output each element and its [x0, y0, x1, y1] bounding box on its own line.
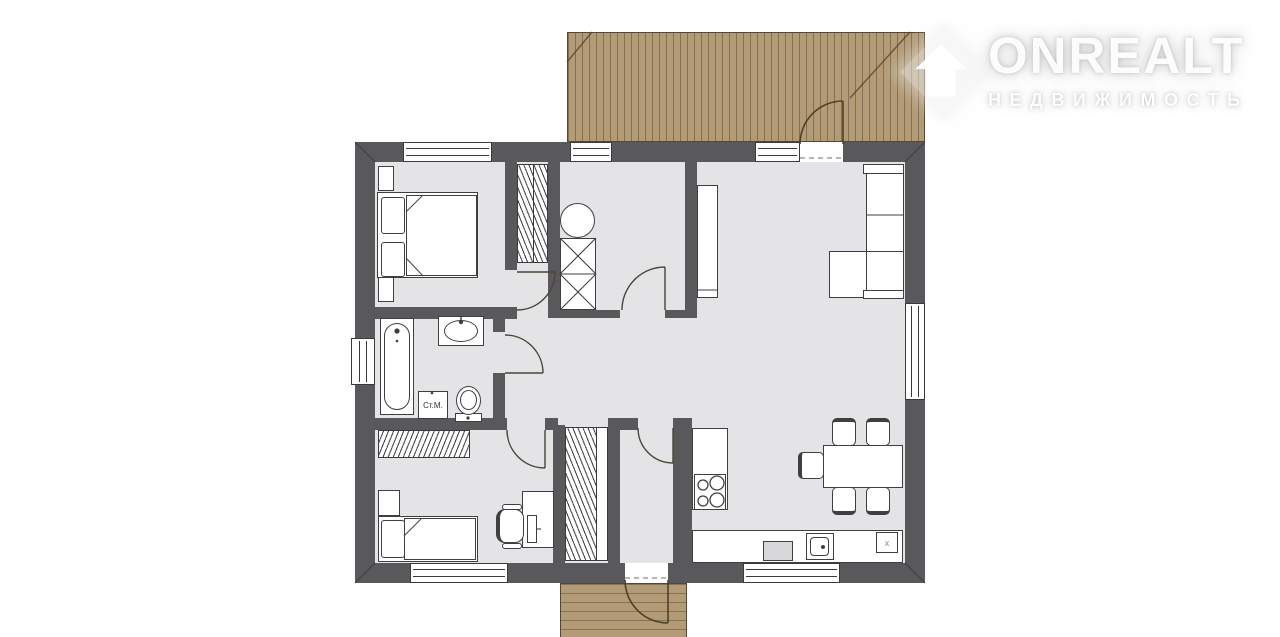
wall-utility-bottom [548, 310, 620, 318]
top-deck-terrace [567, 32, 925, 142]
wall-left [355, 385, 375, 583]
front-door-opening [800, 142, 843, 162]
wardrobe-corridor [565, 427, 597, 561]
kitchen-counter-bottom [692, 530, 903, 563]
desk-chair-armrest [502, 504, 522, 510]
wall-right [905, 142, 925, 303]
wardrobe-corridor-shelf [596, 427, 608, 561]
pillow [381, 242, 405, 277]
dining-chair [798, 452, 824, 479]
window-bathroom [351, 338, 375, 385]
kitchen-sink-basin [810, 537, 829, 556]
wardrobe-hall [517, 164, 548, 263]
nightstand [378, 166, 394, 191]
kitchen-appliance [763, 541, 793, 561]
monitor [527, 515, 537, 543]
stove [694, 474, 726, 510]
washing-machine-label: Ст.М. [418, 391, 448, 419]
window-kitchen [743, 563, 840, 583]
wall-bedroom2-top [375, 418, 507, 430]
blanket [404, 518, 476, 560]
wall-bedroom2-right [553, 425, 565, 563]
kitchen-corner-box-label: x [876, 532, 898, 553]
window-living [755, 142, 800, 162]
wall-corridor [608, 418, 638, 430]
sofa-foot [863, 290, 904, 299]
dining-chair [832, 487, 856, 515]
wall-bottom [668, 563, 743, 583]
dining-chair [866, 487, 890, 515]
dining-chair [866, 418, 890, 446]
shelving-unit [560, 238, 596, 310]
pillow [381, 520, 405, 558]
floor-plan-page: ONREALT НЕДВИЖИМОСТЬ [0, 0, 1280, 637]
watermark-subtitle-text: НЕДВИЖИМОСТЬ [988, 90, 1248, 111]
wall-bedroom1-right [505, 162, 517, 270]
tv-console [697, 185, 718, 298]
wall-top [612, 142, 755, 162]
desk-chair [496, 509, 524, 543]
wardrobe-bedroom2 [378, 430, 470, 458]
window-utility [570, 142, 612, 162]
wall-living-left [685, 162, 697, 318]
sink-basin [444, 320, 478, 342]
wall-top [492, 142, 570, 162]
nightstand [378, 490, 400, 516]
toilet-bowl-inner [460, 390, 477, 410]
desk-chair-armrest [502, 543, 522, 549]
nightstand [378, 277, 394, 302]
wall-left [355, 142, 375, 338]
wall-right [905, 400, 925, 583]
wall-utility-left [548, 162, 560, 310]
dining-table [823, 445, 903, 488]
wall-kitchen-left [673, 418, 692, 563]
pillow [381, 197, 405, 234]
dining-chair [832, 418, 856, 446]
back-door-opening [625, 563, 668, 583]
wall-closet-right [608, 430, 620, 563]
bathtub-basin [384, 323, 410, 410]
wall-bottom [508, 563, 625, 583]
blanket [406, 195, 477, 276]
window-bedroom1 [403, 142, 492, 162]
window-living-right [905, 303, 925, 400]
wall-bathroom-right [493, 373, 505, 418]
wall-bathroom-right [493, 319, 505, 332]
window-bedroom2 [410, 563, 508, 583]
bottom-deck-porch [560, 583, 687, 637]
watermark-brand-text: ONREALT [988, 30, 1248, 81]
water-heater [560, 203, 595, 238]
